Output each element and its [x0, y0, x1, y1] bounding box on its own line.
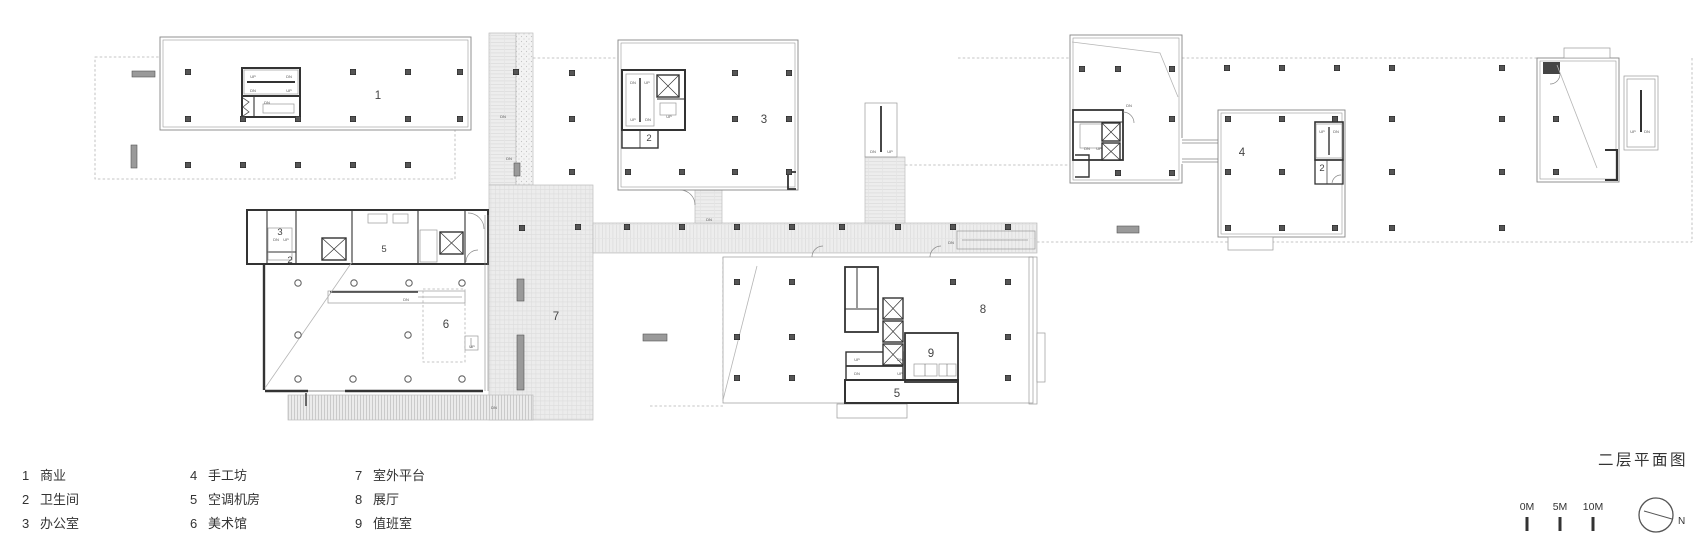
- column: [1332, 225, 1338, 231]
- column: [895, 224, 901, 230]
- round-column: [350, 376, 356, 382]
- column: [1332, 116, 1338, 122]
- svg-text:6: 6: [190, 516, 197, 531]
- stair-label: DN: [286, 74, 292, 79]
- column: [519, 225, 525, 231]
- legend-item-9: 9值班室: [355, 516, 412, 531]
- column: [1499, 116, 1505, 122]
- column: [1005, 375, 1011, 381]
- column: [350, 162, 356, 168]
- svg-text:4: 4: [190, 468, 197, 483]
- column: [732, 169, 738, 175]
- svg-text:卫生间: 卫生间: [40, 492, 79, 507]
- column: [1005, 224, 1011, 230]
- stair-label: UP: [283, 237, 289, 242]
- column: [1334, 65, 1340, 71]
- column: [1225, 116, 1231, 122]
- column: [789, 334, 795, 340]
- svg-text:空调机房: 空调机房: [208, 492, 260, 507]
- svg-text:9: 9: [355, 516, 362, 531]
- column: [1169, 170, 1175, 176]
- stair-label: UP: [1096, 146, 1102, 151]
- column: [405, 69, 411, 75]
- column: [457, 69, 463, 75]
- column: [1389, 169, 1395, 175]
- svg-text:8: 8: [355, 492, 362, 507]
- north-arrow: N: [1639, 498, 1685, 532]
- stair-label: DN: [706, 217, 712, 222]
- scale-bar: 0M 5M 10M: [1520, 501, 1604, 531]
- column: [839, 224, 845, 230]
- column: [1553, 116, 1559, 122]
- room-label-7: 7: [553, 311, 559, 323]
- round-column: [405, 332, 411, 338]
- column: [295, 116, 301, 122]
- round-column: [295, 280, 301, 286]
- stair-label: DN: [500, 114, 506, 119]
- column: [569, 116, 575, 122]
- column: [679, 224, 685, 230]
- stair-label: UP: [250, 74, 256, 79]
- room-label-6: 6: [443, 319, 449, 331]
- legend-item-3: 3办公室: [22, 516, 79, 531]
- room-label-5: 5: [381, 244, 386, 255]
- svg-text:手工坊: 手工坊: [208, 468, 247, 483]
- north-arrow-circle: [1639, 498, 1673, 532]
- floor-plan-svg: 1324232567895UPDNDNUPDNDNUPUPDNUPDNDNDNU…: [0, 0, 1700, 550]
- stair-label: DN: [250, 88, 256, 93]
- svg-text:2: 2: [22, 492, 29, 507]
- column: [734, 375, 740, 381]
- column: [405, 162, 411, 168]
- column: [1169, 116, 1175, 122]
- column: [513, 69, 519, 75]
- legend: 1商业 2卫生间 3办公室 4手工坊 5空调机房 6美术馆 7室外平台 8展厅 …: [22, 468, 425, 531]
- svg-text:展厅: 展厅: [373, 492, 399, 507]
- column: [732, 70, 738, 76]
- stair-label: DN: [1644, 129, 1650, 134]
- column: [789, 224, 795, 230]
- column: [1389, 116, 1395, 122]
- legend-item-8: 8展厅: [355, 492, 399, 507]
- column: [575, 224, 581, 230]
- stair-label: UP: [630, 117, 636, 122]
- column: [734, 224, 740, 230]
- column: [1225, 225, 1231, 231]
- room-label-2: 2: [646, 133, 651, 144]
- column: [625, 169, 631, 175]
- column: [1499, 225, 1505, 231]
- column: [1389, 225, 1395, 231]
- north-label: N: [1678, 516, 1685, 527]
- stair-label: DN: [630, 80, 636, 85]
- column: [350, 69, 356, 75]
- column: [786, 116, 792, 122]
- stair-label: DN: [854, 371, 860, 376]
- room-label-8: 8: [980, 304, 986, 316]
- legend-item-5: 5空调机房: [190, 492, 260, 507]
- column: [185, 69, 191, 75]
- column: [1279, 116, 1285, 122]
- legend-item-4: 4手工坊: [190, 468, 247, 483]
- column: [1279, 65, 1285, 71]
- svg-text:5M: 5M: [1553, 501, 1568, 513]
- svg-text:办公室: 办公室: [40, 516, 79, 531]
- stair-label: DN: [506, 156, 512, 161]
- column: [786, 70, 792, 76]
- scale-tick: [1592, 517, 1595, 531]
- stair-label: UP: [1630, 129, 1636, 134]
- column: [950, 279, 956, 285]
- column: [1005, 279, 1011, 285]
- stair-label: UP: [286, 88, 292, 93]
- round-column: [459, 280, 465, 286]
- column: [732, 116, 738, 122]
- column: [1499, 169, 1505, 175]
- floor-plan-page: 1324232567895UPDNDNUPDNDNUPUPDNUPDNDNDNU…: [0, 0, 1700, 550]
- column: [1279, 169, 1285, 175]
- legend-item-7: 7室外平台: [355, 468, 425, 483]
- scale-tick: [1526, 517, 1529, 531]
- stair-label: UP: [644, 80, 650, 85]
- stair-label: DN: [897, 357, 903, 362]
- room-label-4: 4: [1239, 147, 1246, 159]
- page-title: 二层平面图: [1598, 452, 1688, 469]
- stair-label: DN: [403, 297, 409, 302]
- round-column: [459, 376, 465, 382]
- svg-text:值班室: 值班室: [373, 516, 412, 531]
- column: [624, 224, 630, 230]
- column: [1169, 66, 1175, 72]
- stair-label: UP: [897, 371, 903, 376]
- stair-label: UP: [469, 344, 475, 349]
- svg-text:5: 5: [190, 492, 197, 507]
- room-label-9: 9: [928, 348, 934, 360]
- column: [569, 70, 575, 76]
- column: [350, 116, 356, 122]
- column: [185, 116, 191, 122]
- room-label-5: 5: [894, 388, 900, 400]
- svg-text:1: 1: [22, 468, 29, 483]
- svg-text:10M: 10M: [1583, 501, 1603, 513]
- stair-label: DN: [1126, 103, 1132, 108]
- legend-item-1: 1商业: [22, 468, 66, 483]
- svg-text:3: 3: [22, 516, 29, 531]
- stair-label: DN: [1333, 129, 1339, 134]
- column: [789, 279, 795, 285]
- column: [1079, 66, 1085, 72]
- column: [1553, 169, 1559, 175]
- column: [1389, 65, 1395, 71]
- stair-label: UP: [854, 357, 860, 362]
- column: [185, 162, 191, 168]
- column: [786, 169, 792, 175]
- column: [457, 116, 463, 122]
- room-label-2: 2: [287, 255, 292, 266]
- column: [1115, 170, 1121, 176]
- scale-tick: [1559, 517, 1562, 531]
- svg-text:0M: 0M: [1520, 501, 1535, 513]
- column: [1225, 169, 1231, 175]
- stair-label: DN: [491, 405, 497, 410]
- stair-label: DN: [870, 149, 876, 154]
- column: [789, 375, 795, 381]
- svg-text:室外平台: 室外平台: [373, 468, 425, 483]
- stair-label: DN: [1084, 146, 1090, 151]
- svg-text:商业: 商业: [40, 468, 66, 483]
- column: [1224, 65, 1230, 71]
- stair-label: UP: [1319, 129, 1325, 134]
- column: [1005, 334, 1011, 340]
- column: [405, 116, 411, 122]
- column: [1279, 225, 1285, 231]
- room-label-1: 1: [375, 90, 381, 102]
- stair-label: UP: [887, 149, 893, 154]
- stair-label: DN: [273, 237, 279, 242]
- round-column: [295, 376, 301, 382]
- column: [1115, 66, 1121, 72]
- column: [295, 162, 301, 168]
- round-column: [406, 280, 412, 286]
- column: [679, 169, 685, 175]
- svg-text:7: 7: [355, 468, 362, 483]
- stair-label: DN: [264, 100, 270, 105]
- legend-item-6: 6美术馆: [190, 516, 247, 531]
- round-column: [295, 332, 301, 338]
- room-label-2: 2: [1319, 163, 1324, 174]
- room-label-3: 3: [761, 114, 767, 126]
- column: [734, 279, 740, 285]
- legend-item-2: 2卫生间: [22, 492, 79, 507]
- stair-label: DN: [948, 240, 954, 245]
- column: [569, 169, 575, 175]
- svg-text:美术馆: 美术馆: [208, 516, 247, 531]
- column: [240, 162, 246, 168]
- stair-label: DN: [645, 117, 651, 122]
- round-column: [405, 376, 411, 382]
- column: [240, 116, 246, 122]
- round-column: [351, 280, 357, 286]
- column: [734, 334, 740, 340]
- column: [950, 224, 956, 230]
- stair-label: UP: [666, 114, 672, 119]
- column: [1499, 65, 1505, 71]
